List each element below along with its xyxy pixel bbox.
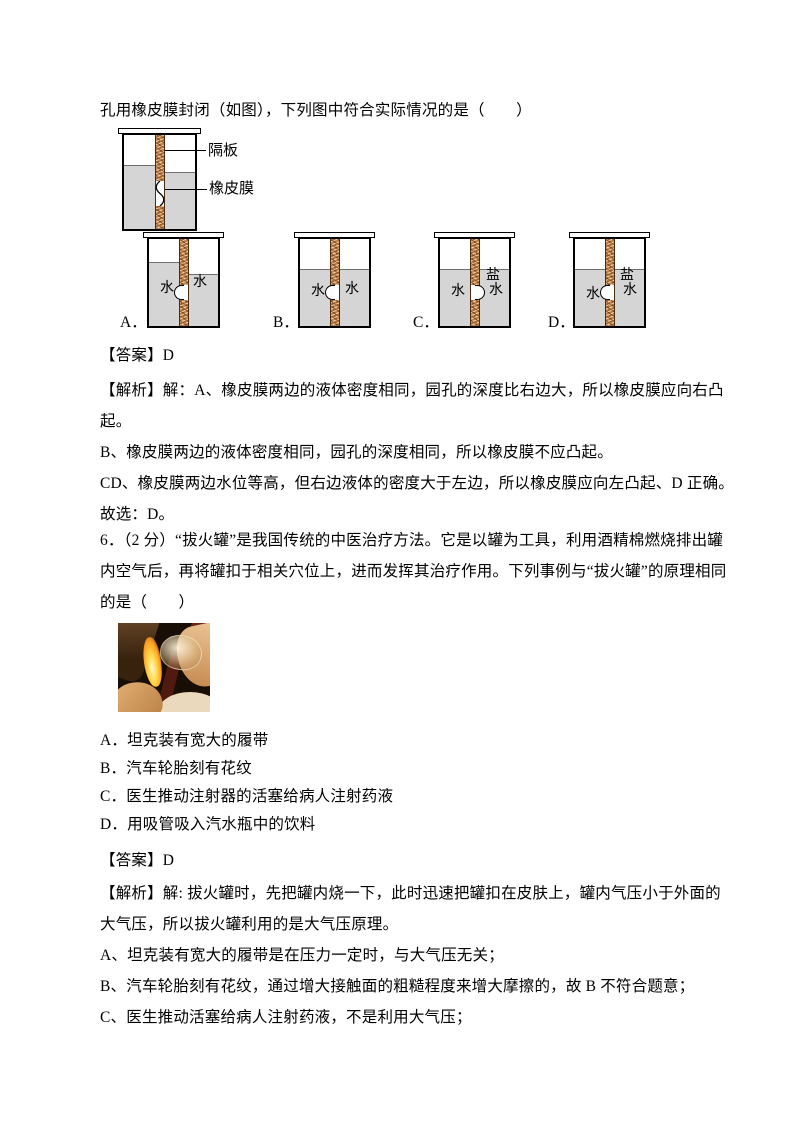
liquid-label: 水: [311, 285, 325, 299]
q5-option-b-beaker: 水 水: [298, 238, 371, 328]
q5-option-c-letter: C．: [413, 315, 439, 331]
q5-analysis-line: 起。: [100, 412, 131, 431]
q6-stem-line: 的是（ ）: [100, 593, 194, 612]
rubber-membrane: [471, 285, 479, 300]
q6-stem-line: 内空气后，再将罐扣于相关穴位上，进而发挥其治疗作用。下列事例与“拔火罐”的原理相…: [100, 562, 726, 581]
rubber-membrane: [156, 181, 164, 206]
rubber-membrane: [180, 285, 188, 300]
membrane-wiggle-icon: [154, 181, 166, 206]
document-page: 孔用橡皮膜封闭（如图），下列图中符合实际情况的是（ ） 隔板 橡皮膜 A． 水 …: [0, 0, 794, 1123]
q5-answer-line: 【答案】D: [100, 346, 174, 365]
q6-option-b: B．汽车轮胎刻有花纹: [100, 759, 252, 778]
q5-analysis-line: B、橡皮膜两边的液体密度相同，园孔的深度相同，所以橡皮膜不应凸起。: [100, 443, 613, 462]
partition-divider: [470, 239, 480, 326]
q5-reference-beaker: [122, 134, 197, 231]
beaker-lid: [118, 128, 201, 134]
liquid-label: 水: [345, 283, 359, 297]
q6-analysis-line: A、坦克装有宽大的履带是在压力一定时，与大气压无关；: [100, 946, 504, 965]
q5-option-d-letter: D．: [548, 315, 575, 331]
partition-divider: [179, 239, 189, 326]
q5-option-a-beaker: 水 水: [147, 238, 220, 328]
flame-shape: [141, 636, 164, 688]
q6-analysis-line: B、汽车轮胎刻有花纹，通过增大接触面的粗糙程度来增大摩擦的，故 B 不符合题意；: [100, 977, 694, 996]
liquid-label: 水: [160, 282, 174, 296]
liquid-label: 盐: [620, 269, 634, 283]
q5-option-a-letter: A．: [120, 315, 147, 331]
q6-analysis-line: 【解析】解: 拔火罐时，先把罐内烧一下，此时迅速把罐扣在皮肤上，罐内气压小于外面…: [100, 884, 721, 903]
beaker-lid: [434, 232, 515, 238]
q5-analysis-line: 【解析】解：A、橡皮膜两边的液体密度相同，园孔的深度比右边大，所以橡皮膜应向右凸: [100, 381, 724, 400]
membrane-bulge-left: [325, 285, 335, 300]
q5-option-b-letter: B．: [273, 315, 299, 331]
liquid-label: 盐: [486, 269, 500, 283]
liquid-label: 水: [193, 276, 207, 290]
partition-divider: [605, 239, 615, 326]
q6-answer-line: 【答案】D: [100, 851, 174, 870]
rubber-membrane: [331, 285, 339, 300]
beaker-lid: [569, 232, 650, 238]
cupping-therapy-photo: [118, 623, 210, 712]
liquid-label: 水: [451, 285, 465, 299]
membrane-bulge-left: [174, 285, 184, 300]
q5-option-d-beaker: 水 盐 水: [573, 238, 646, 328]
membrane-bulge-left: [600, 285, 610, 300]
q5-stem-line: 孔用橡皮膜封闭（如图），下列图中符合实际情况的是（ ）: [100, 101, 532, 120]
right-liquid: [335, 269, 370, 326]
divider-label: 隔板: [208, 143, 238, 159]
q5-analysis-line: 故选：D。: [100, 505, 174, 524]
liquid-label: 水: [489, 284, 503, 298]
q6-analysis-line: 大气压，所以拔火罐利用的是大气压原理。: [100, 915, 398, 934]
beaker-lid: [143, 232, 224, 238]
rubber-membrane: [606, 285, 614, 300]
q5-analysis-line: CD、橡皮膜两边水位等高，但右边液体的密度大于左边，所以橡皮膜应向左凸起、D 正…: [100, 474, 734, 493]
q6-option-d: D．用吸管吸入汽水瓶中的饮料: [100, 815, 316, 834]
q6-stem-line: 6．（2 分）“拔火罐”是我国传统的中医治疗方法。它是以罐为工具，利用酒精棉燃烧…: [100, 531, 723, 550]
q6-option-a: A．坦克装有宽大的履带: [100, 731, 268, 750]
q5-option-c-beaker: 水 盐 水: [438, 238, 511, 328]
liquid-label: 水: [586, 288, 600, 302]
q6-analysis-line: C、医生推动活塞给病人注射药液，不是利用大气压；: [100, 1008, 472, 1027]
q6-option-c: C．医生推动注射器的活塞给病人注射药液: [100, 787, 393, 806]
divider-pointer-line: [162, 150, 206, 151]
liquid-label: 水: [623, 284, 637, 298]
beaker-lid: [294, 232, 375, 238]
membrane-pointer-line: [165, 189, 207, 190]
membrane-label: 橡皮膜: [209, 181, 254, 197]
partition-divider: [330, 239, 340, 326]
